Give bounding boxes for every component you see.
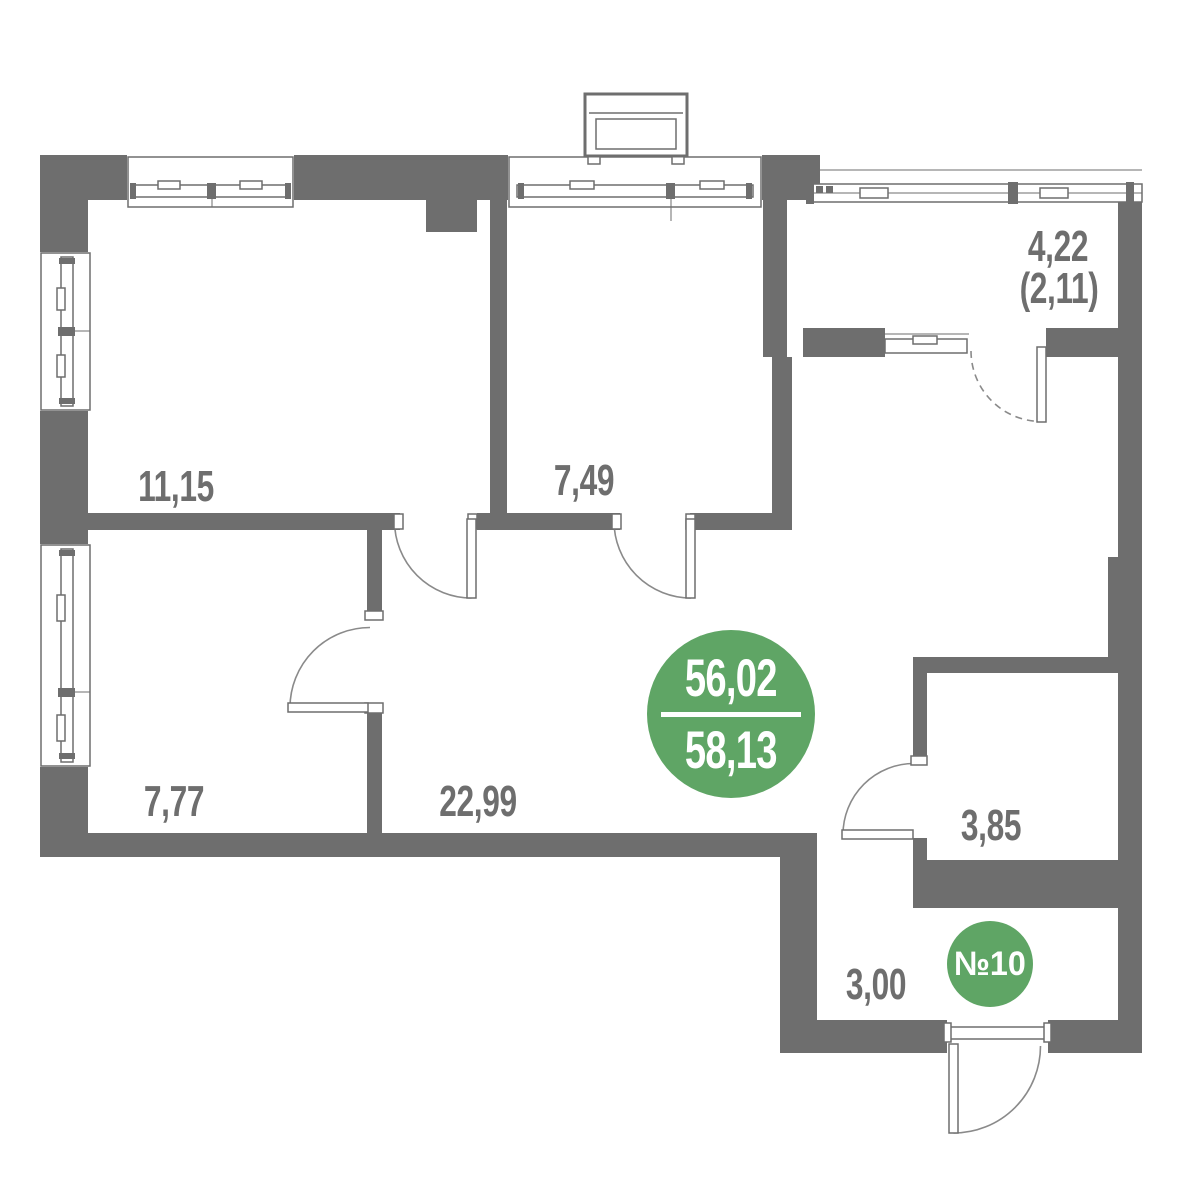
window-icon bbox=[41, 253, 90, 410]
unit-number-value: №10 bbox=[954, 947, 1026, 981]
door-icon bbox=[288, 611, 383, 713]
door-icon bbox=[612, 514, 695, 598]
total-area-badge: 56,02 58,13 bbox=[647, 630, 815, 798]
ac-unit-icon bbox=[585, 94, 687, 164]
balcony-reduced-area-label: (2,11) bbox=[1020, 267, 1099, 311]
room-area-label-kitchen: 7,49 bbox=[554, 459, 614, 503]
window-icon bbox=[41, 545, 90, 766]
room-area-label-living: 22,99 bbox=[439, 780, 516, 824]
plan-symbols bbox=[0, 0, 1200, 1200]
living-area-value: 58,13 bbox=[685, 724, 777, 777]
unit-number-badge: №10 bbox=[947, 921, 1033, 1007]
room-area-label-bathroom: 3,85 bbox=[961, 804, 1021, 848]
balcony-door-icon bbox=[971, 347, 1046, 422]
balcony-glazing-icon bbox=[806, 170, 1142, 204]
window-icon bbox=[128, 157, 293, 207]
floor-plan: 11,15 7,49 7,77 22,99 3,85 3,00 4,22 (2,… bbox=[0, 0, 1200, 1200]
door-icon bbox=[842, 756, 927, 839]
room-area-label-room: 7,77 bbox=[144, 780, 204, 824]
room-area-label-hallway: 3,00 bbox=[846, 963, 906, 1007]
badge-divider bbox=[661, 712, 801, 717]
room-area-label-bedroom: 11,15 bbox=[138, 465, 214, 509]
entrance-door-icon bbox=[944, 1023, 1051, 1133]
balcony-area-label: 4,22 bbox=[1028, 225, 1088, 269]
window-icon bbox=[881, 334, 969, 353]
door-icon bbox=[394, 514, 477, 598]
total-area-value: 56,02 bbox=[685, 652, 777, 705]
window-icon bbox=[509, 157, 761, 221]
